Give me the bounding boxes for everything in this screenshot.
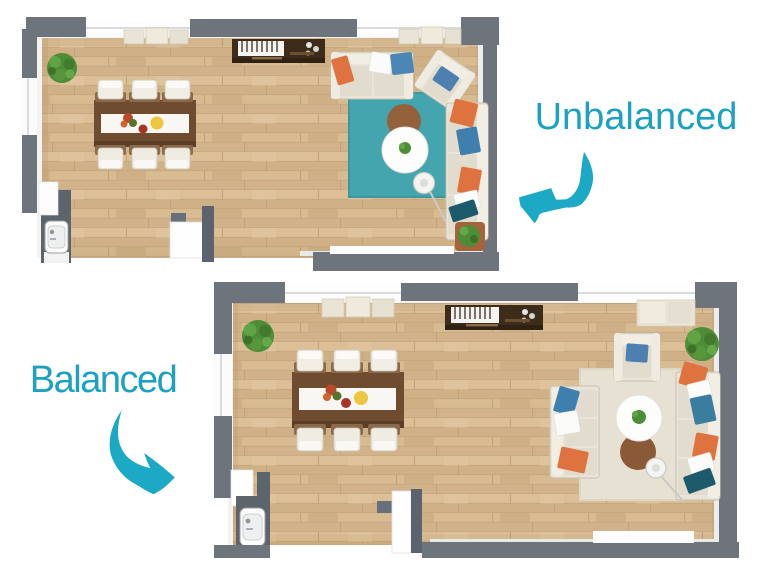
svg-text:Unbalanced: Unbalanced — [535, 96, 738, 138]
svg-text:Balanced: Balanced — [30, 359, 176, 401]
